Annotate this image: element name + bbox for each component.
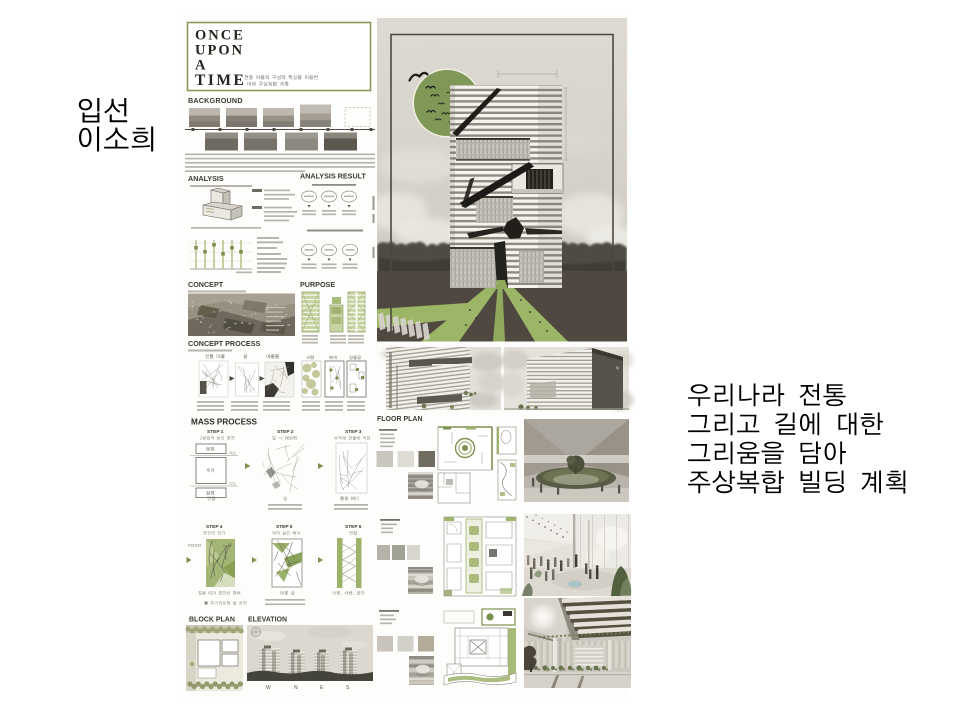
svg-text:ANALYSIS RESULT: ANALYSIS RESULT <box>300 172 367 181</box>
svg-text:ANALYSIS: ANALYSIS <box>188 174 224 183</box>
svg-text:PURPOSE: PURPOSE <box>300 280 335 289</box>
svg-text:FLOOR PLAN: FLOOR PLAN <box>377 416 423 423</box>
svg-text:ELEVATION: ELEVATION <box>248 617 287 624</box>
svg-text:STEP 1: STEP 1 <box>207 429 224 435</box>
svg-text:CONCEPT: CONCEPT <box>188 280 224 289</box>
svg-text:W: W <box>266 685 271 691</box>
svg-text:STEP 6: STEP 6 <box>345 524 362 530</box>
svg-text:CONCEPT PROCESS: CONCEPT PROCESS <box>188 339 260 348</box>
svg-text:MASS PROCESS: MASS PROCESS <box>191 418 258 427</box>
svg-text:STEP 4: STEP 4 <box>206 524 223 530</box>
svg-text:POINT: POINT <box>188 543 202 548</box>
svg-text:BACKGROUND: BACKGROUND <box>188 96 243 105</box>
svg-text:STEP 2: STEP 2 <box>277 429 294 435</box>
svg-text:STEP 5: STEP 5 <box>276 524 293 530</box>
svg-text:STEP 3: STEP 3 <box>345 429 362 435</box>
svg-text:UPON: UPON <box>195 43 244 59</box>
svg-text:BLOCK PLAN: BLOCK PLAN <box>189 617 235 624</box>
svg-text:TIME: TIME <box>195 72 246 89</box>
svg-text:N: N <box>294 685 298 691</box>
svg-text:ONCE: ONCE <box>195 28 245 44</box>
